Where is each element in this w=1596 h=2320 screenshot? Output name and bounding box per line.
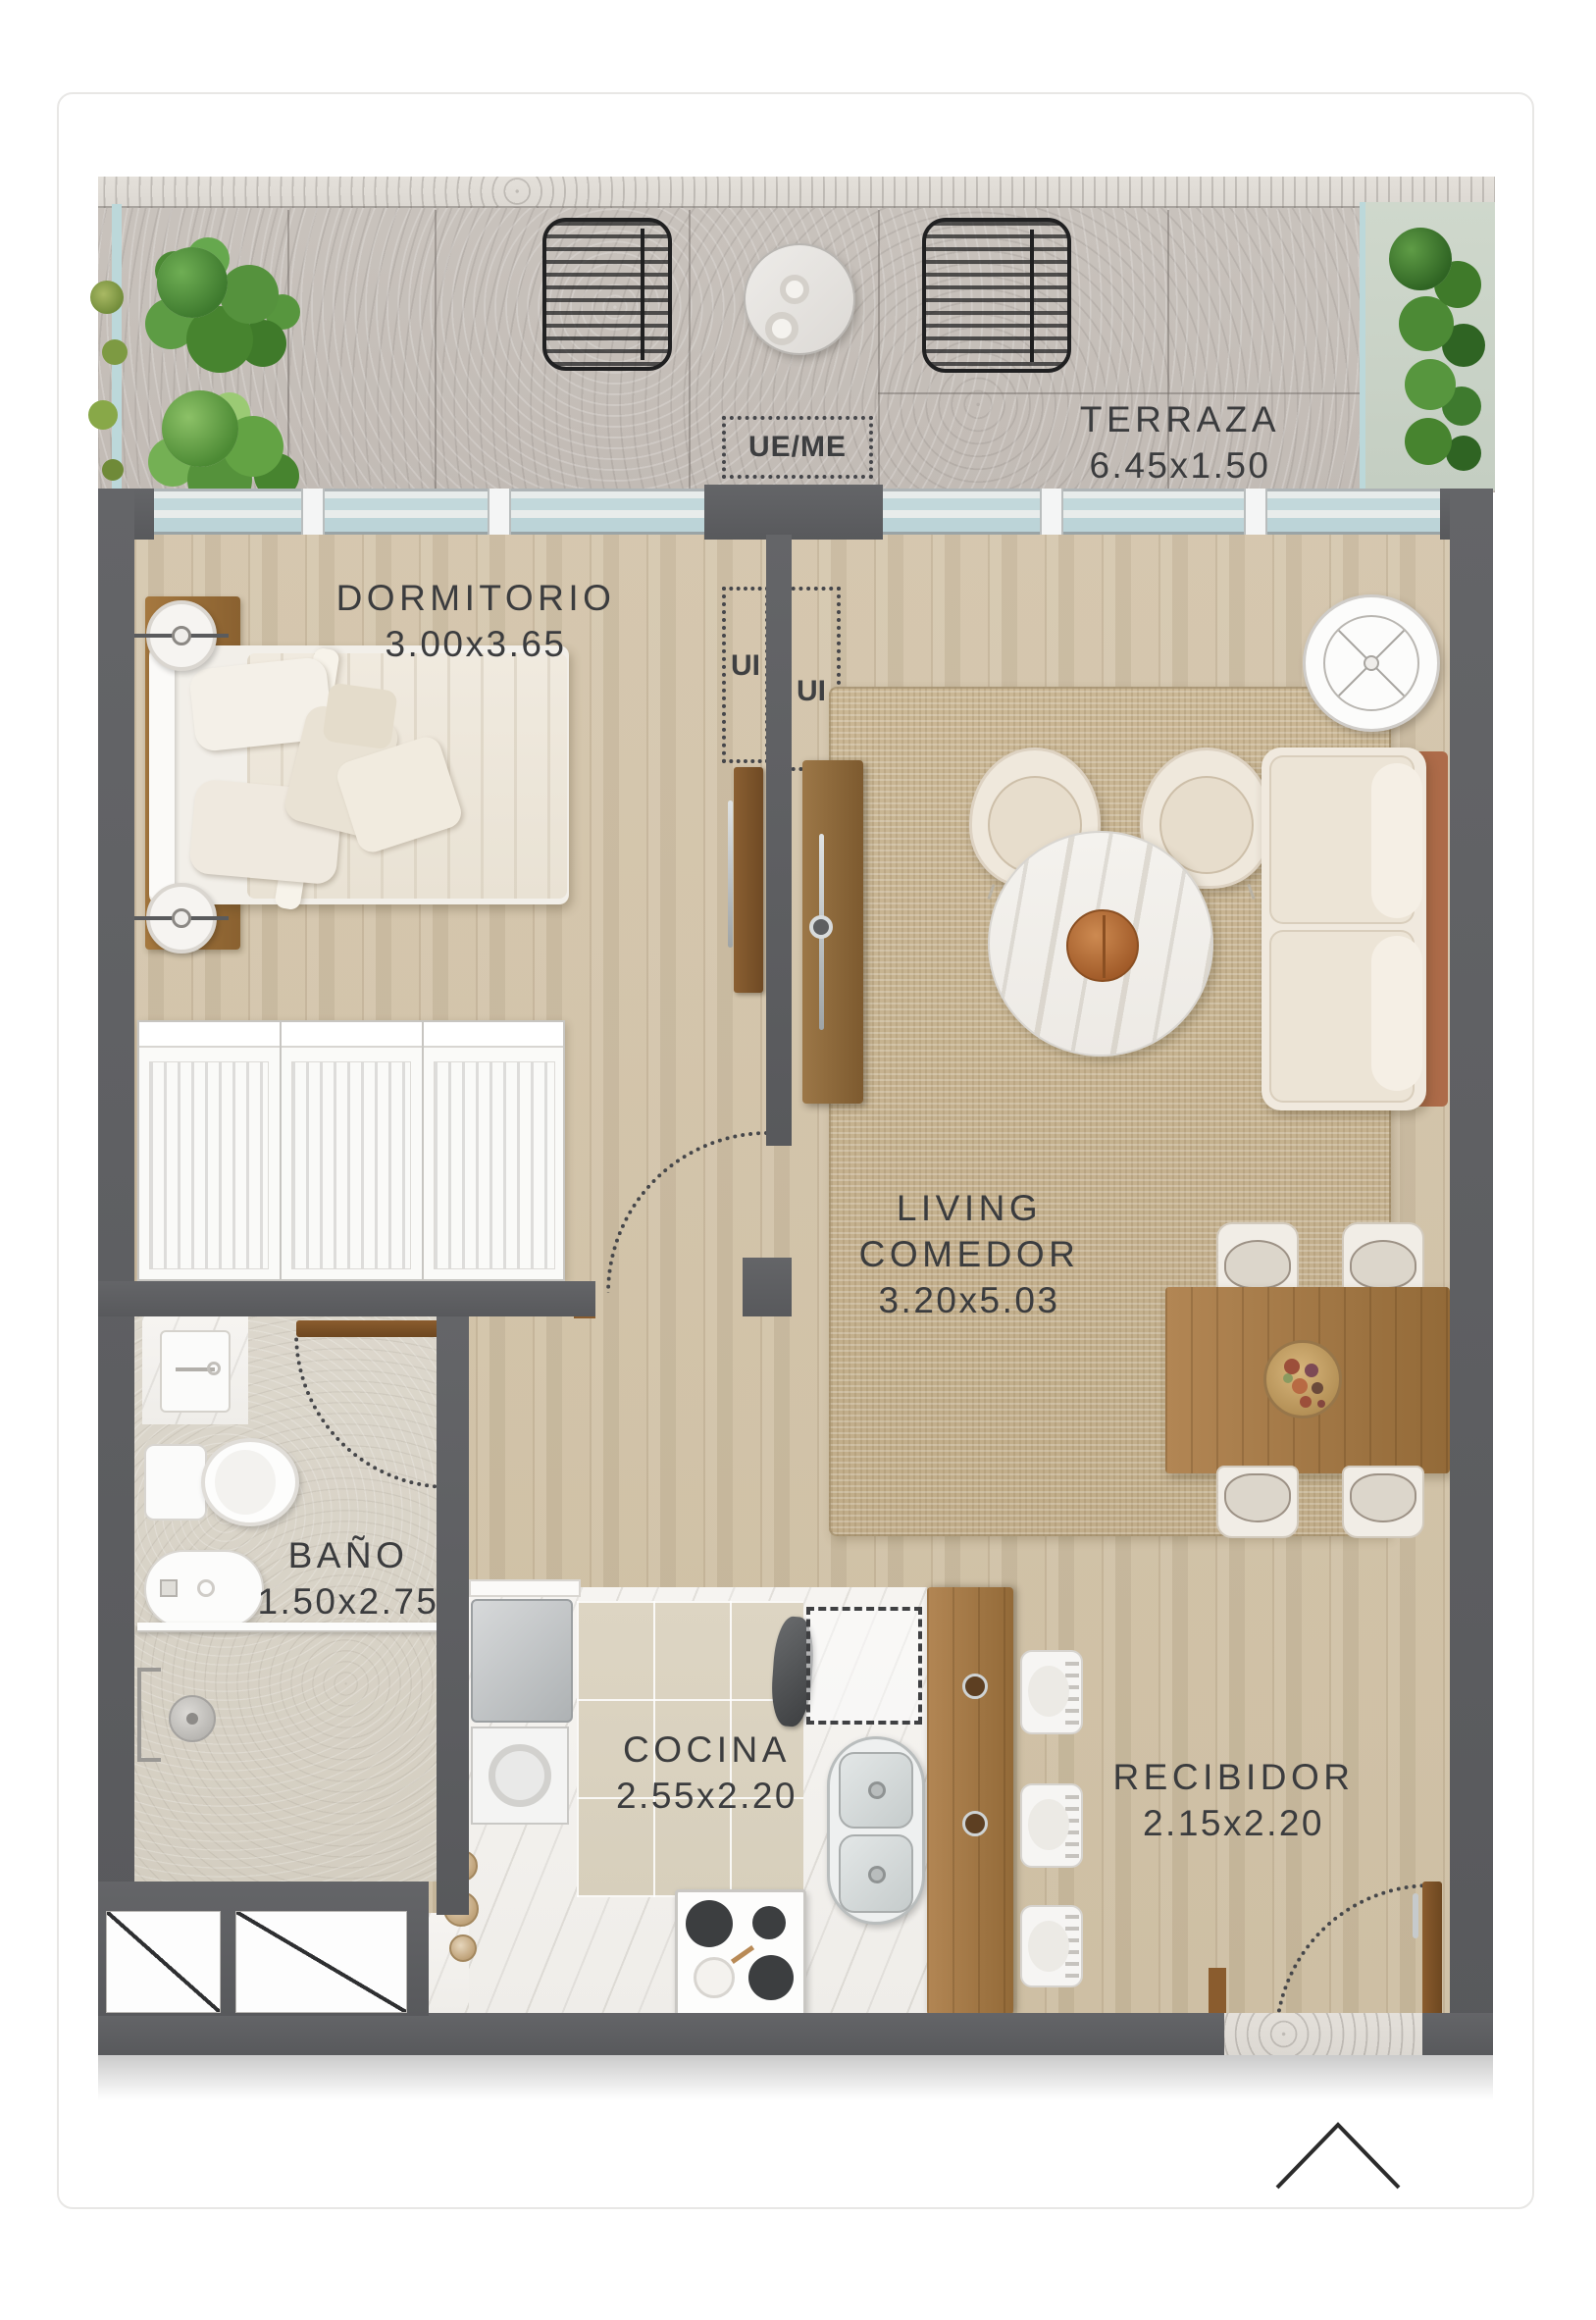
terrace-grout <box>878 392 1403 394</box>
dining-chair <box>1216 1466 1299 1538</box>
wardrobe-slats <box>434 1061 555 1269</box>
kitchen-sink <box>827 1736 925 1925</box>
burner <box>748 1955 794 2000</box>
terrace-grout <box>689 210 691 492</box>
north-arrow-icon <box>1265 2109 1413 2199</box>
planter-plants <box>1389 228 1452 290</box>
wardrobe-shelf <box>139 1022 563 1048</box>
dorm-sliding-panel <box>734 767 763 993</box>
stool-seat <box>1028 1799 1069 1850</box>
shower-valve-tick <box>137 1758 161 1762</box>
bidet-drain <box>197 1579 215 1597</box>
chair-seat <box>1350 1473 1416 1522</box>
bano-dims: 1.50x2.75 <box>235 1578 461 1624</box>
island-bowl <box>962 1811 988 1836</box>
nightstand-lamp <box>146 600 217 671</box>
kitchen-shelf <box>469 1579 581 1597</box>
window-dormitorio <box>154 489 704 540</box>
wall-partition <box>766 535 792 1146</box>
ui-label-left: UI <box>731 649 760 683</box>
terraza-name: TERRAZA <box>1028 396 1332 442</box>
window-mullion <box>301 489 325 540</box>
shaft-box <box>106 1911 221 2013</box>
toilet-tank <box>144 1444 207 1521</box>
kitchen-island <box>927 1587 1013 2015</box>
plant <box>162 390 238 467</box>
entry-door-handle <box>1413 1893 1418 1938</box>
sofa-backrest <box>1371 936 1422 1091</box>
fruit <box>1284 1359 1300 1374</box>
drain-center <box>186 1713 198 1725</box>
wall-bath-right <box>437 1316 469 1915</box>
wardrobe-slats <box>149 1061 269 1269</box>
bidet-tap <box>160 1579 178 1597</box>
dishwasher-dashed-box <box>806 1607 922 1725</box>
cocina-name: COCINA <box>592 1727 822 1773</box>
coffee-table <box>988 831 1213 1057</box>
side-table-hub <box>1364 655 1379 671</box>
living-dims: 3.20x5.03 <box>827 1277 1111 1323</box>
bowl-split <box>1103 915 1106 978</box>
burner <box>686 1900 733 1947</box>
wardrobe-divider <box>280 1022 282 1279</box>
dining-chair <box>1342 1222 1424 1295</box>
wall-right <box>1450 489 1493 2055</box>
bath-sink <box>160 1330 231 1413</box>
window-mullion <box>1244 489 1267 540</box>
basin-drain <box>868 1781 886 1799</box>
living-name-1: LIVING <box>827 1185 1111 1231</box>
stool-seat <box>1028 1666 1069 1717</box>
cocina-label: COCINA 2.55x2.20 <box>592 1727 822 1819</box>
terraza-dims: 6.45x1.50 <box>1028 442 1332 489</box>
stove <box>675 1889 806 2017</box>
tv-console <box>802 760 863 1104</box>
bano-name: BAÑO <box>235 1532 461 1578</box>
wardrobe-slats <box>291 1061 411 1269</box>
terrace-grout <box>878 210 880 492</box>
shaft-box <box>235 1911 407 2013</box>
stool <box>1020 1905 1083 1987</box>
cocina-dims: 2.55x2.20 <box>592 1773 822 1819</box>
bed-headboard <box>149 651 175 899</box>
ue-me-box: UE/ME <box>722 416 873 479</box>
dining-chair <box>1216 1222 1299 1295</box>
bano-label: BAÑO 1.50x2.75 <box>235 1532 461 1624</box>
wall-top-mid <box>704 485 883 540</box>
washer-door <box>489 1744 551 1807</box>
chair-seat <box>1224 1240 1291 1289</box>
plant <box>90 281 124 314</box>
shower-valve <box>137 1668 141 1762</box>
chair-seat <box>1350 1240 1416 1289</box>
wall-doorway-stub <box>743 1258 792 1316</box>
stool <box>1020 1783 1083 1868</box>
terrace-cup <box>780 275 809 304</box>
side-table <box>1303 594 1440 732</box>
lamp-center <box>172 626 191 645</box>
kitchen-counter-corner <box>429 1913 469 2013</box>
toilet-bowl <box>201 1438 299 1526</box>
bed-cushion <box>322 682 398 749</box>
recibidor-label: RECIBIDOR 2.15x2.20 <box>1089 1754 1378 1846</box>
dormitorio-dims: 3.00x3.65 <box>319 621 633 667</box>
terrace-grout <box>287 210 289 492</box>
stool <box>1020 1650 1083 1734</box>
terrace-glass-left <box>112 204 122 490</box>
pot-handle <box>731 1945 754 1964</box>
entry-threshold <box>1224 2013 1422 2055</box>
plan-shadow <box>98 2055 1493 2100</box>
toilet-seat <box>215 1450 276 1515</box>
recibidor-name: RECIBIDOR <box>1089 1754 1378 1800</box>
shower-drain <box>169 1695 216 1742</box>
dorm-panel-handle <box>728 800 733 948</box>
washer <box>471 1727 569 1825</box>
ui-label-right: UI <box>797 675 826 708</box>
burner <box>752 1906 786 1939</box>
terrace-edge-band <box>98 177 1495 208</box>
coffee-table-bowl <box>1066 909 1139 982</box>
living-name-2: COMEDOR <box>827 1231 1111 1277</box>
soundbar-knob <box>809 915 833 939</box>
chair-spine <box>641 229 644 359</box>
fruit-bowl <box>1263 1340 1342 1418</box>
jar <box>449 1934 477 1962</box>
terrace-chair <box>542 218 672 371</box>
stove-pot <box>694 1957 735 1998</box>
basin-drain <box>868 1866 886 1883</box>
dormitorio-name: DORMITORIO <box>319 575 633 621</box>
terrace-cup <box>765 312 798 345</box>
island-bowl <box>962 1674 988 1699</box>
sink-basin <box>839 1834 913 1913</box>
ue-me-label: UE/ME <box>748 431 847 464</box>
terrace-grout <box>435 210 437 492</box>
window-living <box>883 489 1440 540</box>
window-mullion <box>488 489 511 540</box>
wardrobe <box>137 1020 565 1281</box>
terrace-chair <box>922 218 1071 373</box>
sofa <box>1261 748 1448 1110</box>
wardrobe-divider <box>422 1022 424 1279</box>
dining-chair <box>1342 1466 1424 1538</box>
nightstand-lamp <box>146 883 217 954</box>
terraza-label: TERRAZA 6.45x1.50 <box>1028 396 1332 489</box>
sink-drain <box>207 1362 221 1375</box>
lamp-center <box>172 908 191 928</box>
recibidor-dims: 2.15x2.20 <box>1089 1800 1378 1846</box>
fridge <box>471 1599 573 1723</box>
chair-spine <box>1030 230 1034 362</box>
living-label: LIVING COMEDOR 3.20x5.03 <box>827 1185 1111 1323</box>
wall-left <box>98 489 134 2055</box>
shower-valve-tick <box>137 1668 161 1672</box>
sofa-backrest <box>1371 763 1422 918</box>
sink-basin <box>839 1752 913 1829</box>
plant <box>157 247 228 318</box>
floorplan-page: { "plan": { "rooms": { "terraza": { "nam… <box>0 0 1596 2320</box>
window-mullion <box>1040 489 1063 540</box>
stool-seat <box>1028 1921 1069 1972</box>
chair-seat <box>1224 1473 1291 1522</box>
wall-dorm-bottom <box>98 1281 595 1316</box>
dormitorio-label: DORMITORIO 3.00x3.65 <box>319 575 633 667</box>
